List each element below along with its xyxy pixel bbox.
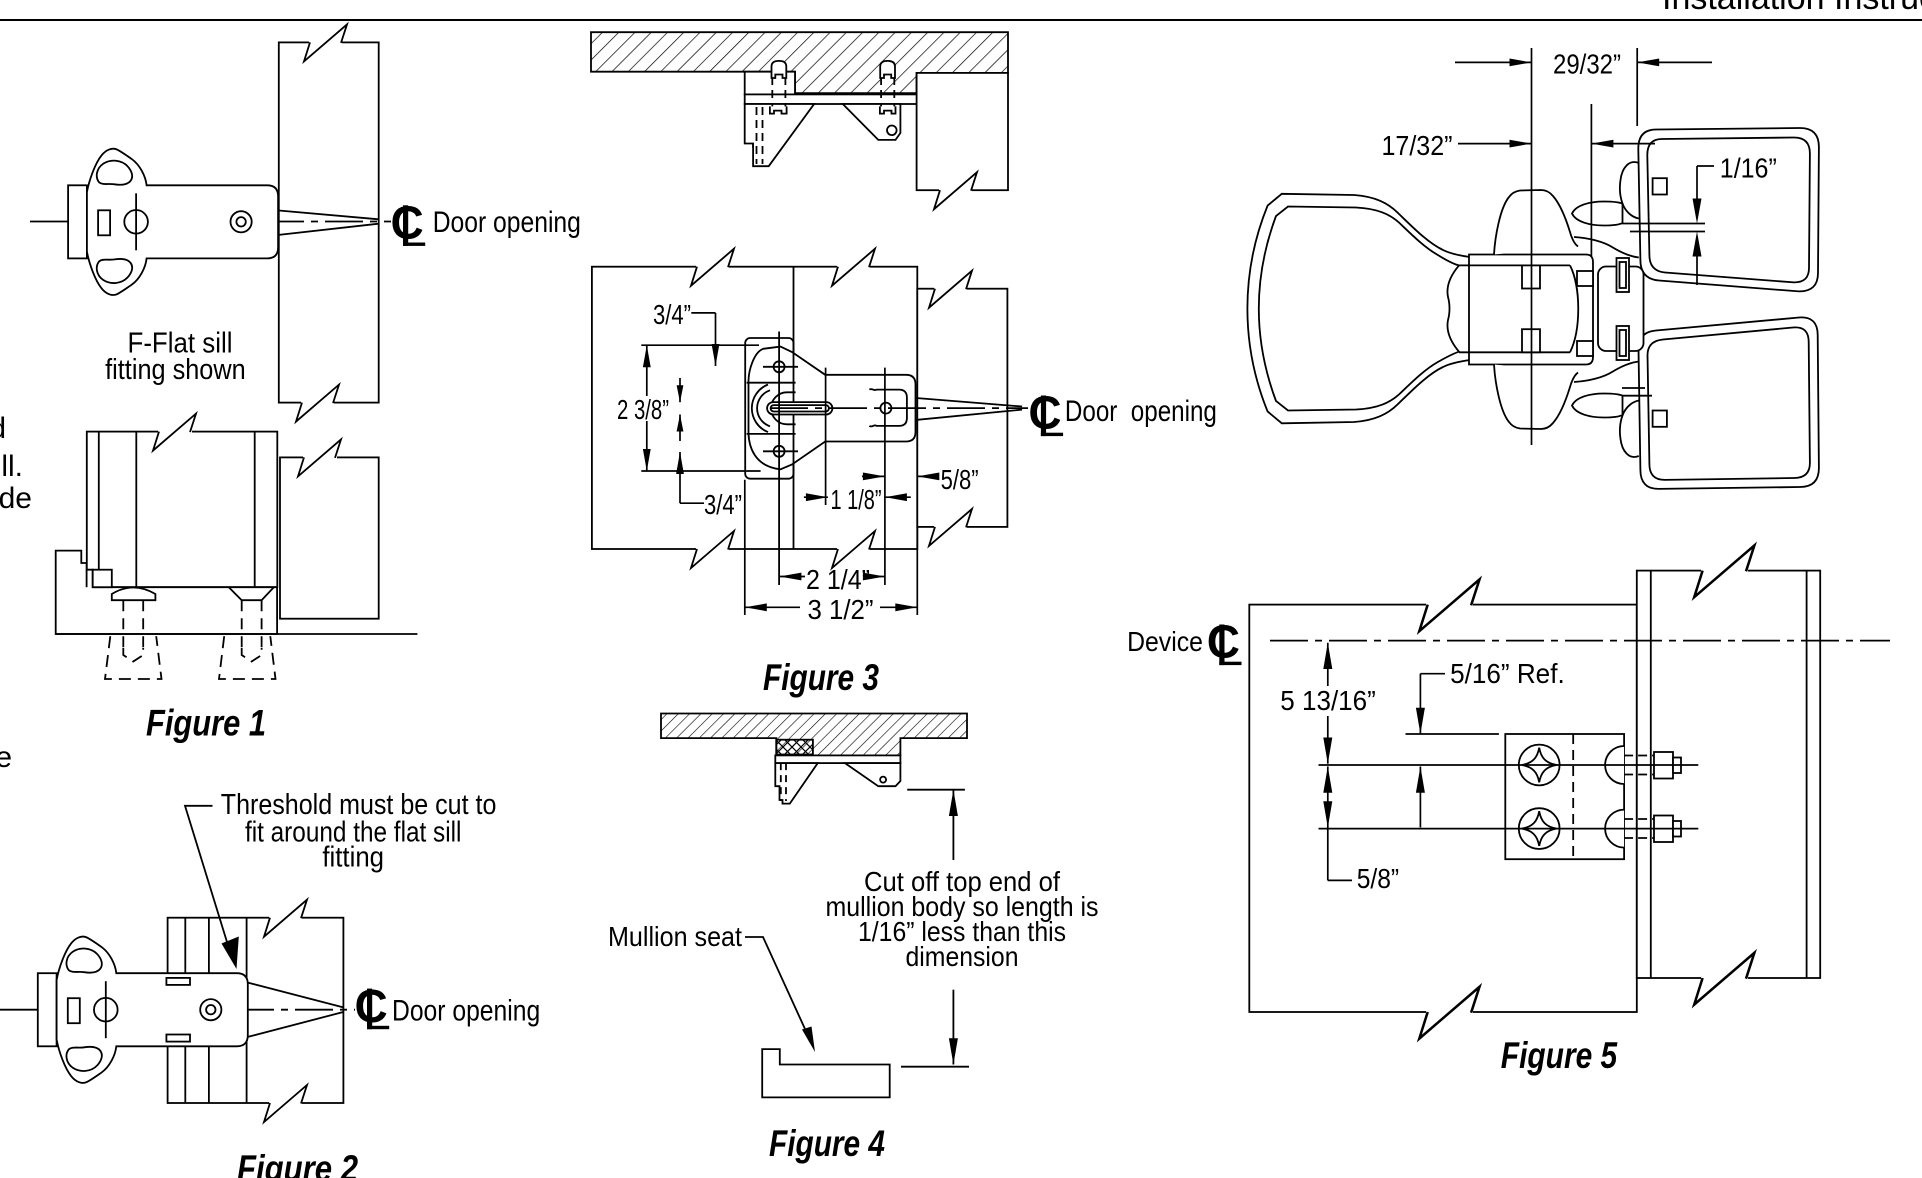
svg-text:Figure 2: Figure 2 xyxy=(237,1148,358,1178)
svg-text:2 3/8”: 2 3/8” xyxy=(617,394,669,425)
svg-text:d: d xyxy=(0,412,6,445)
svg-text:2 1/4”: 2 1/4” xyxy=(806,564,870,595)
svg-text:3/4”: 3/4” xyxy=(653,299,691,330)
svg-text:29/32”: 29/32” xyxy=(1553,49,1621,80)
svg-text:Figure 1: Figure 1 xyxy=(146,703,266,744)
svg-text:3 1/2”: 3 1/2” xyxy=(808,594,874,625)
svg-text:de: de xyxy=(0,482,32,515)
svg-text:e: e xyxy=(0,741,12,774)
svg-text:dimension: dimension xyxy=(906,941,1019,972)
svg-text:1 1/8”: 1 1/8” xyxy=(831,484,882,515)
svg-text:Figure 5: Figure 5 xyxy=(1501,1035,1619,1076)
svg-text:Door opening: Door opening xyxy=(433,206,581,239)
svg-text:fitting: fitting xyxy=(322,842,384,874)
svg-text:5 13/16”: 5 13/16” xyxy=(1280,685,1376,716)
svg-text:Figure 3: Figure 3 xyxy=(763,657,879,698)
svg-text:5/16” Ref.: 5/16” Ref. xyxy=(1450,658,1565,689)
svg-text:17/32”: 17/32” xyxy=(1382,130,1453,161)
svg-text:Door opening: Door opening xyxy=(1065,395,1217,428)
svg-text:Installation Instruction: Installation Instruction xyxy=(1662,0,1922,17)
svg-text:Door opening: Door opening xyxy=(392,995,540,1028)
svg-text:5/8”: 5/8” xyxy=(1357,863,1399,894)
svg-text:ll.: ll. xyxy=(1,450,23,483)
svg-text:5/8”: 5/8” xyxy=(941,464,979,495)
svg-text:Mullion seat: Mullion seat xyxy=(608,921,742,952)
svg-text:3/4”: 3/4” xyxy=(704,489,742,520)
svg-text:fitting shown: fitting shown xyxy=(105,354,246,386)
svg-text:Figure 4: Figure 4 xyxy=(769,1123,885,1164)
svg-text:Device: Device xyxy=(1127,626,1203,657)
svg-text:1/16”: 1/16” xyxy=(1720,153,1777,184)
